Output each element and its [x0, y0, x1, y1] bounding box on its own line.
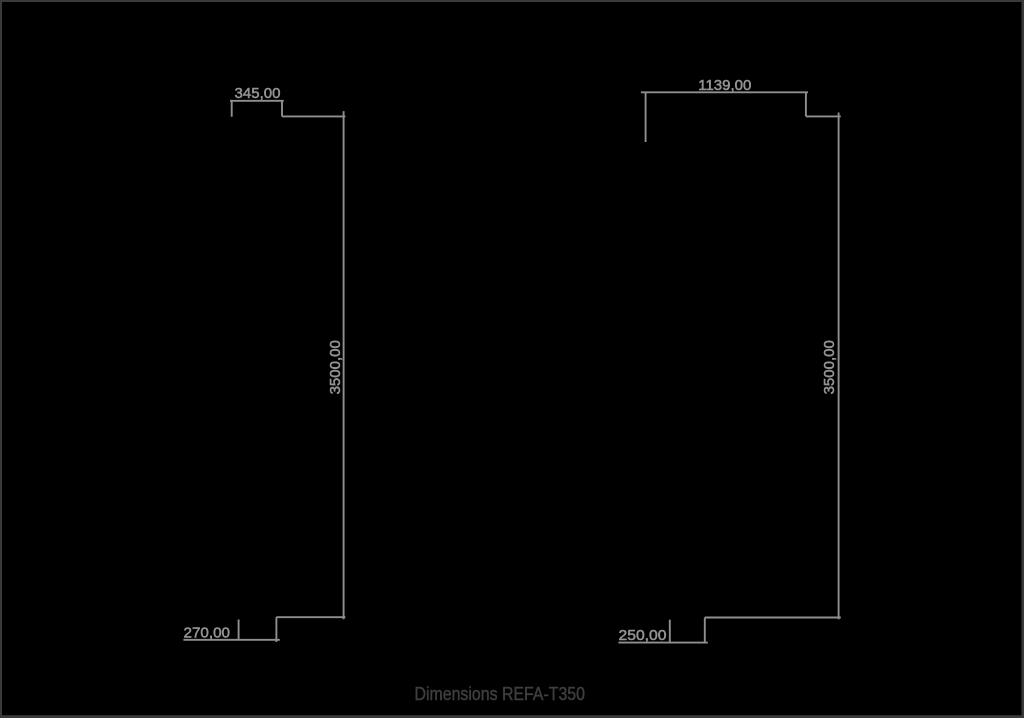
- svg-text:345,00: 345,00: [235, 85, 281, 102]
- svg-text:270,00: 270,00: [184, 625, 231, 642]
- svg-text:3500,00: 3500,00: [327, 340, 344, 394]
- svg-text:Dimensions REFA-T350: Dimensions REFA-T350: [415, 684, 586, 704]
- svg-text:3500,00: 3500,00: [821, 340, 838, 394]
- svg-text:1139,00: 1139,00: [698, 77, 751, 94]
- svg-text:250,00: 250,00: [619, 627, 667, 644]
